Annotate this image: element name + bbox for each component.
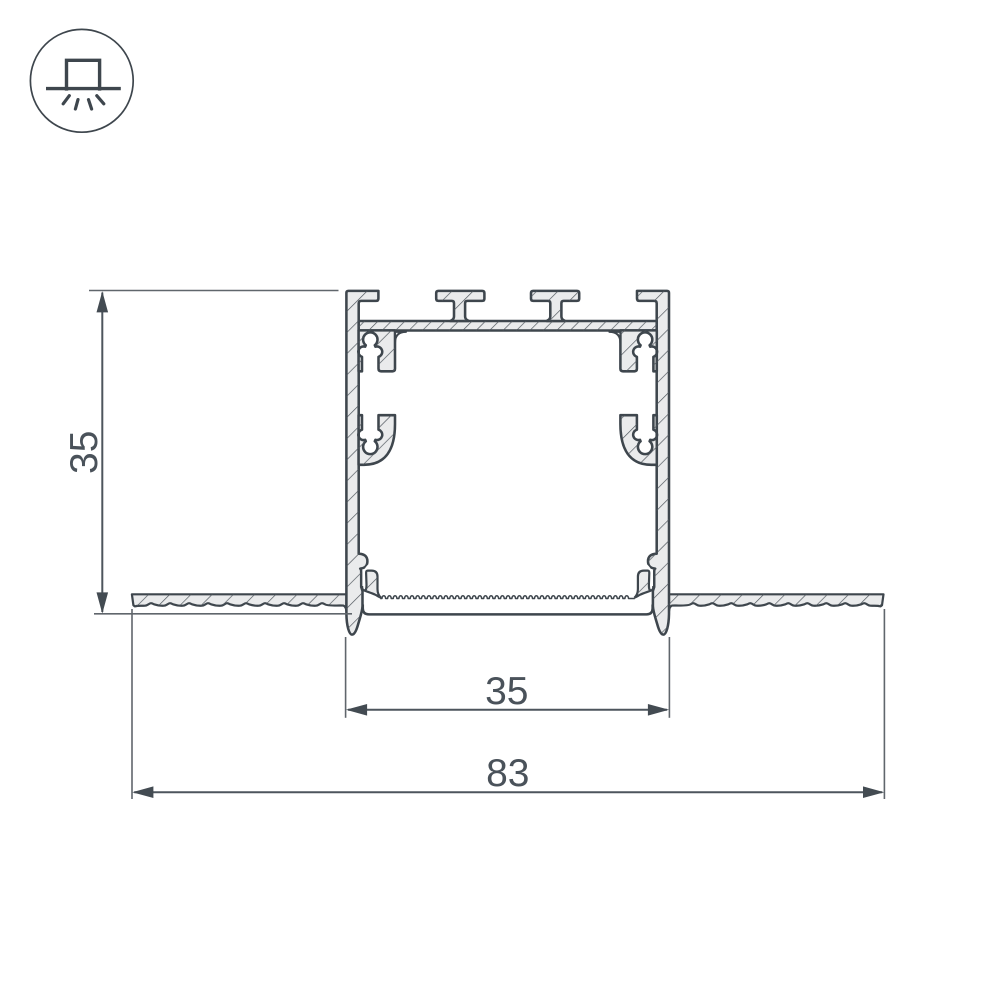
svg-text:35: 35 xyxy=(63,431,106,474)
svg-text:35: 35 xyxy=(485,670,528,713)
svg-text:83: 83 xyxy=(486,752,529,795)
